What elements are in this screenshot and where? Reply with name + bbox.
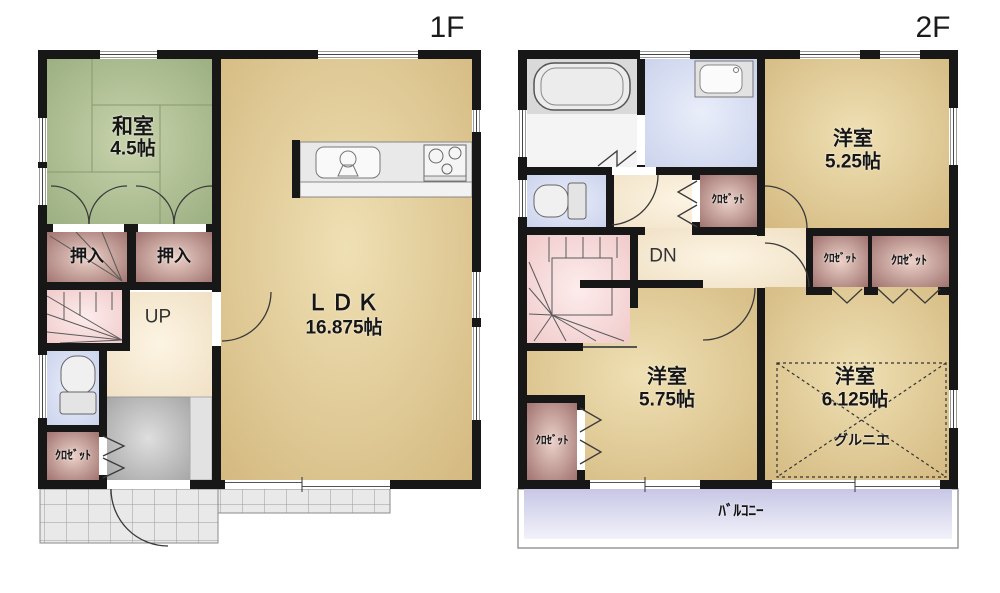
f1-porch-tiles	[40, 489, 218, 543]
floor1-title: 1F	[429, 13, 464, 43]
f2-toilet-doorway	[612, 167, 656, 175]
stairs-up-label: UP	[145, 308, 171, 327]
f2-bath-wash-zone	[527, 114, 637, 167]
washitsu-size: 4.5帖	[110, 140, 155, 159]
floor2-title: 2F	[915, 13, 950, 43]
f1-washitsu-door1-gap	[53, 224, 124, 232]
f2-bath-doorway	[637, 115, 645, 165]
f2-toilet-icon	[534, 183, 586, 219]
room575-size: 5.75帖	[639, 391, 695, 410]
room6125-name: 洋室	[835, 367, 875, 387]
f1-entrance-gap	[107, 480, 190, 489]
f1-closet-label: ｸﾛｾﾞｯﾄ	[55, 449, 91, 461]
stove-icon	[424, 145, 466, 181]
oshiire1-label: 押入	[70, 248, 104, 265]
floorplan-canvas: 1F 2F 和室 4.5帖 押入 押入 UP ｸﾛｾﾞｯﾄ ＬＤＫ 16.875…	[0, 0, 1000, 593]
room575-name: 洋室	[647, 367, 687, 387]
washitsu-name: 和室	[112, 117, 154, 138]
f1-kitchen-counter	[300, 142, 472, 197]
f1-genkan-floor	[107, 397, 190, 480]
f2-closet-right1-label: ｸﾛｾﾞｯﾄ	[824, 254, 857, 265]
f1-ldk-floor	[221, 59, 472, 480]
stairs-down-label: DN	[649, 247, 676, 266]
f2-closet-mid-label: ｸﾛｾﾞｯﾄ	[712, 195, 745, 206]
room6125-size: 6.125帖	[822, 391, 889, 410]
room525-name: 洋室	[833, 129, 873, 149]
floorplan-drawing	[0, 0, 1000, 593]
ldk-size: 16.875帖	[305, 319, 382, 338]
grenier-label: グルニエ	[834, 433, 890, 447]
f1-hall-ldk-doorway	[212, 292, 221, 346]
oshiire2-label: 押入	[157, 248, 191, 265]
f2-stairs-floor	[527, 235, 630, 343]
f2-closet-bottom-label: ｸﾛｾﾞｯﾄ	[536, 436, 569, 447]
f1-genkan-step	[190, 397, 212, 480]
kitchen-sink-icon	[316, 147, 380, 178]
f1-terrace-tiles	[218, 489, 390, 513]
f1-washitsu-door2-gap	[138, 224, 206, 232]
balcony-label: ﾊﾞﾙｺﾆｰ	[718, 504, 763, 519]
f1-toilet-icon	[60, 356, 96, 414]
bathtub-icon	[534, 63, 630, 110]
ldk-name: ＬＤＫ	[306, 292, 381, 314]
room525-size: 5.25帖	[825, 153, 881, 172]
washbasin-icon	[695, 61, 753, 97]
f2-closet-right2-label: ｸﾛｾﾞｯﾄ	[891, 254, 927, 266]
